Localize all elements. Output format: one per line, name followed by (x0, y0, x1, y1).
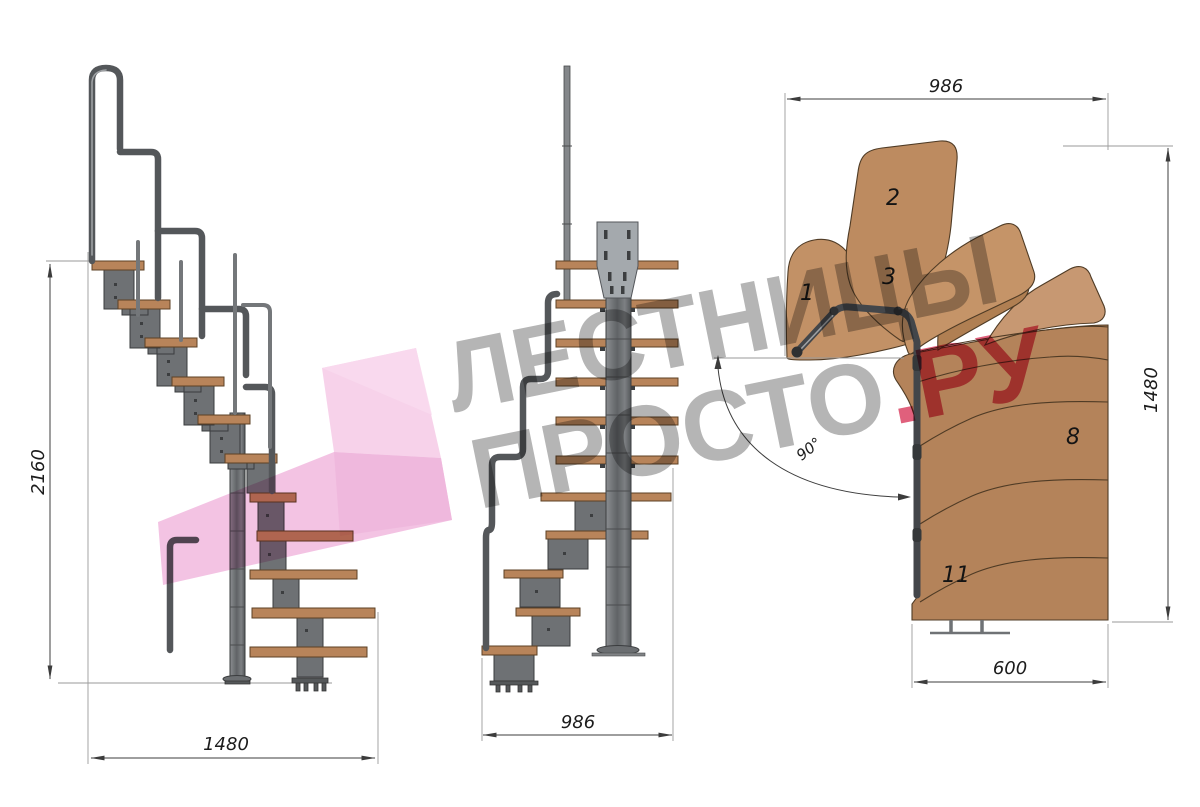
dim-height-label: 2160 (28, 449, 49, 495)
plan-step-number-11: 11 (942, 563, 970, 588)
plan-base-stubs (951, 620, 982, 633)
angle-arrow-right (898, 494, 911, 501)
plan-dim-depth-label: 1480 (1141, 367, 1162, 413)
plan-step-number-8: 8 (1066, 425, 1080, 450)
staircase-drawing-canvas: 2160 1480 986 (0, 0, 1200, 807)
base-plate (592, 653, 645, 656)
dim-width-label: 986 (561, 712, 595, 733)
handrail-sleeve (913, 528, 922, 542)
handrail-sleeve (913, 444, 922, 460)
plan-step-number-2: 2 (886, 186, 900, 211)
plan-dim-width-label: 986 (929, 76, 963, 97)
handrail-loop (92, 68, 120, 261)
side-elevation-view: 2160 1480 (28, 68, 378, 764)
plan-dim-flight-label: 600 (993, 658, 1027, 679)
staircase-drawing-page: 2160 1480 986 (0, 0, 1200, 807)
dim-length-label: 1480 (203, 734, 249, 755)
floor-feet (490, 681, 538, 692)
handrail-segment (202, 309, 246, 375)
